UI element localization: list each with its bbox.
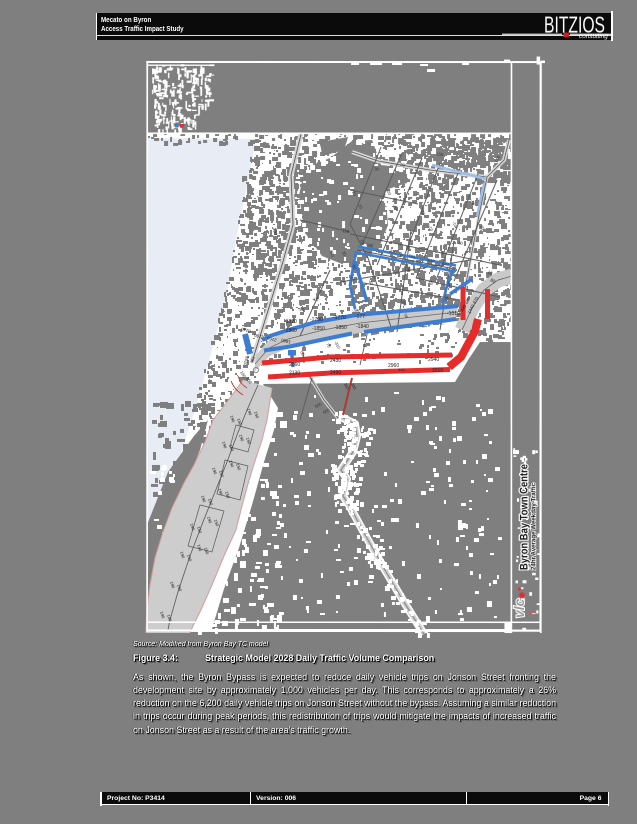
svg-text:-1840: -1840 (356, 324, 369, 330)
svg-text:-1790: -1790 (310, 317, 323, 323)
svg-text:2130: 2130 (289, 370, 300, 376)
svg-text:-1770: -1770 (333, 315, 346, 321)
svg-text:-1850: -1850 (312, 326, 325, 332)
svg-text:390: 390 (398, 367, 405, 372)
svg-text:vlc: vlc (511, 598, 527, 618)
svg-text:3010: 3010 (432, 368, 443, 374)
svg-text:2060: 2060 (289, 362, 300, 368)
svg-text:2430: 2430 (330, 358, 341, 364)
svg-text:-1010: -1010 (447, 311, 460, 317)
svg-text:2940: 2940 (428, 357, 439, 363)
svg-text:-1850: -1850 (334, 325, 347, 331)
svg-text:-1820: -1820 (284, 319, 297, 325)
svg-text:Byron Bay Town Centre: Byron Bay Town Centre (518, 464, 530, 570)
svg-text:-177: -177 (355, 314, 365, 320)
svg-text:-1860: -1860 (284, 328, 297, 334)
svg-text:2490: 2490 (330, 370, 341, 376)
svg-text:24hr Average Weekday Traffic: 24hr Average Weekday Traffic (530, 483, 537, 570)
svg-text:-370: -370 (352, 308, 361, 314)
